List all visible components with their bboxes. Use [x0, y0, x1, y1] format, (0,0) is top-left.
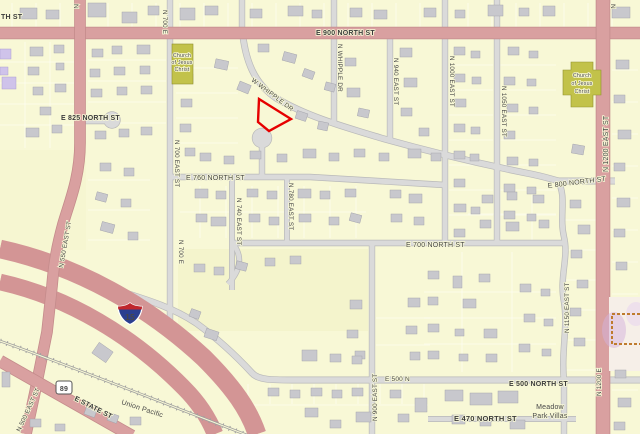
building — [455, 10, 465, 18]
map-label: N WHIPPLE DR — [336, 44, 343, 92]
building — [347, 330, 358, 338]
building — [507, 192, 517, 200]
map-label: E 825 NORTH ST — [61, 115, 120, 122]
building — [529, 159, 538, 166]
building — [453, 276, 462, 288]
building — [479, 274, 490, 282]
building — [504, 211, 515, 219]
building — [454, 179, 465, 187]
building — [618, 398, 631, 407]
map-label: Meadow — [536, 404, 564, 411]
map-label: E 900 NORTH ST — [316, 30, 375, 37]
building — [95, 131, 106, 139]
map-label: N 1000 EAST ST — [448, 56, 455, 107]
zone-tint-blob — [602, 312, 626, 348]
building — [137, 45, 150, 54]
map-label: E 760 NORTH ST — [186, 175, 245, 182]
building — [504, 77, 515, 85]
map-label: TH ST — [1, 14, 23, 21]
building — [121, 199, 131, 207]
building — [471, 207, 480, 214]
building — [200, 153, 211, 161]
map-label: N — [609, 4, 616, 9]
building — [330, 420, 341, 428]
building — [428, 271, 439, 279]
building — [471, 51, 480, 58]
building — [211, 217, 226, 226]
building — [290, 256, 301, 264]
map-label: N — [72, 4, 79, 9]
civic-building — [2, 77, 16, 89]
us-89-shield: 89 — [56, 381, 72, 394]
building — [400, 48, 412, 57]
building — [180, 124, 191, 132]
building — [618, 130, 631, 139]
map-label: N 780 EAST ST — [287, 183, 294, 230]
building — [616, 262, 627, 270]
building — [92, 49, 103, 57]
civic-building — [0, 49, 11, 59]
building — [250, 151, 261, 159]
building — [181, 99, 192, 107]
map-label: Church — [573, 73, 591, 79]
building — [498, 391, 518, 403]
building — [570, 200, 581, 208]
building — [128, 232, 138, 240]
map-label: N 740 EAST ST — [235, 198, 242, 245]
building — [90, 69, 100, 77]
building — [454, 47, 465, 55]
building — [424, 8, 436, 17]
building — [408, 149, 421, 158]
building — [508, 47, 519, 55]
building — [195, 189, 208, 198]
building — [329, 217, 339, 225]
building — [527, 79, 536, 86]
building — [148, 6, 159, 15]
building — [419, 128, 429, 136]
map-label: of Jesus — [171, 60, 192, 66]
building — [265, 258, 275, 266]
building — [249, 214, 260, 222]
building — [527, 187, 536, 194]
building — [463, 299, 476, 308]
building — [486, 354, 497, 362]
building — [571, 250, 582, 258]
building — [428, 324, 439, 332]
building — [504, 184, 515, 192]
building — [250, 9, 262, 18]
building — [529, 107, 538, 114]
building — [472, 77, 481, 84]
building — [124, 168, 134, 176]
building — [332, 390, 342, 398]
building — [33, 87, 43, 95]
map-label: Christ — [174, 67, 189, 73]
building — [302, 350, 317, 361]
building — [305, 408, 318, 417]
building — [347, 88, 360, 97]
building — [2, 372, 10, 387]
building — [577, 280, 588, 288]
building — [345, 58, 356, 66]
building — [317, 121, 328, 131]
map-label: Christ — [574, 89, 589, 95]
building — [488, 5, 503, 16]
building — [578, 225, 590, 234]
building — [390, 390, 401, 398]
building — [299, 214, 311, 222]
building — [533, 195, 544, 203]
map-label: N 940 EAST ST — [392, 58, 399, 105]
building — [117, 87, 127, 95]
building — [617, 198, 630, 207]
building — [288, 6, 303, 16]
building — [398, 414, 409, 422]
building — [454, 204, 466, 212]
building — [506, 222, 519, 231]
building — [303, 149, 316, 158]
building — [54, 45, 64, 53]
building — [112, 46, 122, 54]
building — [401, 108, 412, 116]
building — [454, 151, 465, 159]
map-canvas[interactable]: 1589 TH STE 900 NORTH STNNN 700 EE 825 N… — [0, 0, 640, 434]
interstate-15-number: 15 — [125, 312, 135, 322]
map-label: E 500 N — [385, 376, 410, 383]
building — [507, 157, 518, 165]
building — [28, 67, 39, 75]
map-label: E 500 NORTH ST — [509, 381, 568, 388]
map-viewport[interactable]: 1589 TH STE 900 NORTH STNNN 700 EE 825 N… — [0, 0, 640, 434]
building — [224, 156, 234, 164]
building — [470, 393, 492, 405]
building — [519, 344, 530, 352]
building — [459, 354, 468, 361]
building — [471, 127, 480, 134]
building — [455, 329, 464, 336]
building — [571, 144, 584, 155]
building — [454, 124, 465, 132]
building — [141, 86, 152, 94]
building — [194, 264, 205, 272]
building — [574, 338, 585, 346]
building — [267, 191, 277, 199]
building — [30, 47, 43, 56]
building — [614, 422, 625, 430]
building — [46, 10, 59, 19]
building — [298, 189, 311, 198]
map-label: N 700 EAST ST — [173, 140, 180, 187]
building — [40, 107, 51, 115]
building — [114, 67, 125, 75]
building — [119, 129, 129, 137]
building — [122, 12, 137, 23]
building — [470, 154, 479, 161]
building — [616, 60, 629, 69]
building — [20, 8, 37, 19]
building — [312, 10, 322, 18]
building — [529, 51, 538, 58]
building — [352, 388, 363, 396]
building — [482, 195, 493, 203]
map-label: N 1200 EAST ST — [603, 115, 610, 172]
building — [356, 412, 371, 422]
building — [354, 149, 365, 157]
building — [527, 214, 536, 221]
map-label: N 1050 EAST ST — [500, 86, 507, 137]
building — [406, 326, 417, 334]
map-label: N 900 EAST ST — [372, 374, 379, 421]
building — [258, 44, 269, 52]
building — [345, 189, 356, 197]
map-label: N 1200 E — [596, 368, 603, 396]
building — [88, 3, 106, 17]
map-label: E 470 NORTH ST — [454, 414, 517, 423]
building — [216, 191, 226, 199]
building — [544, 319, 553, 326]
building — [408, 298, 420, 307]
building — [570, 308, 581, 316]
building — [410, 352, 420, 360]
building — [311, 388, 322, 396]
building — [180, 8, 195, 20]
building — [320, 191, 330, 199]
building — [30, 419, 41, 427]
building — [374, 10, 387, 19]
map-label: E 700 NORTH ST — [406, 242, 465, 249]
building — [350, 8, 362, 17]
building — [130, 417, 141, 425]
map-label: Park Villas — [532, 413, 567, 420]
building — [404, 78, 417, 87]
map-label: of Jesus — [571, 81, 592, 87]
building — [390, 190, 401, 198]
building — [507, 104, 518, 112]
building — [290, 390, 300, 398]
map-label: N 1150 EAST ST — [564, 282, 571, 333]
building — [185, 148, 195, 156]
building — [484, 329, 497, 338]
building — [269, 217, 279, 225]
building — [141, 127, 152, 135]
building — [415, 398, 427, 412]
building — [56, 63, 64, 70]
building — [409, 194, 422, 203]
building — [428, 297, 438, 305]
map-label: Church — [173, 53, 191, 59]
building — [100, 163, 111, 171]
building — [329, 153, 339, 161]
building — [431, 153, 441, 161]
us-89-number: 89 — [60, 386, 68, 393]
building — [352, 356, 362, 364]
building — [379, 153, 389, 161]
building — [277, 154, 287, 162]
building — [196, 214, 207, 222]
building — [268, 388, 279, 396]
building — [539, 220, 549, 228]
civic-building — [0, 67, 8, 75]
map-label: N 700 E — [161, 10, 168, 34]
building — [391, 214, 402, 222]
building — [519, 8, 529, 16]
map-label: N 700 E — [177, 240, 184, 264]
building — [524, 314, 535, 322]
building — [541, 289, 550, 296]
building — [26, 128, 39, 137]
building — [445, 390, 463, 401]
building — [614, 229, 625, 237]
building — [480, 220, 491, 228]
building — [542, 349, 551, 356]
building — [52, 125, 62, 133]
building — [454, 229, 465, 237]
building — [330, 354, 341, 362]
building — [91, 89, 102, 97]
building — [414, 217, 424, 225]
building — [140, 66, 150, 74]
building — [428, 351, 439, 359]
building — [247, 189, 258, 197]
building — [615, 370, 626, 378]
building — [520, 284, 531, 292]
building — [205, 6, 218, 15]
building — [55, 84, 66, 92]
building — [350, 300, 362, 309]
building — [214, 267, 224, 275]
building — [614, 163, 625, 171]
building — [614, 95, 625, 103]
building — [55, 424, 65, 431]
building — [543, 6, 555, 16]
